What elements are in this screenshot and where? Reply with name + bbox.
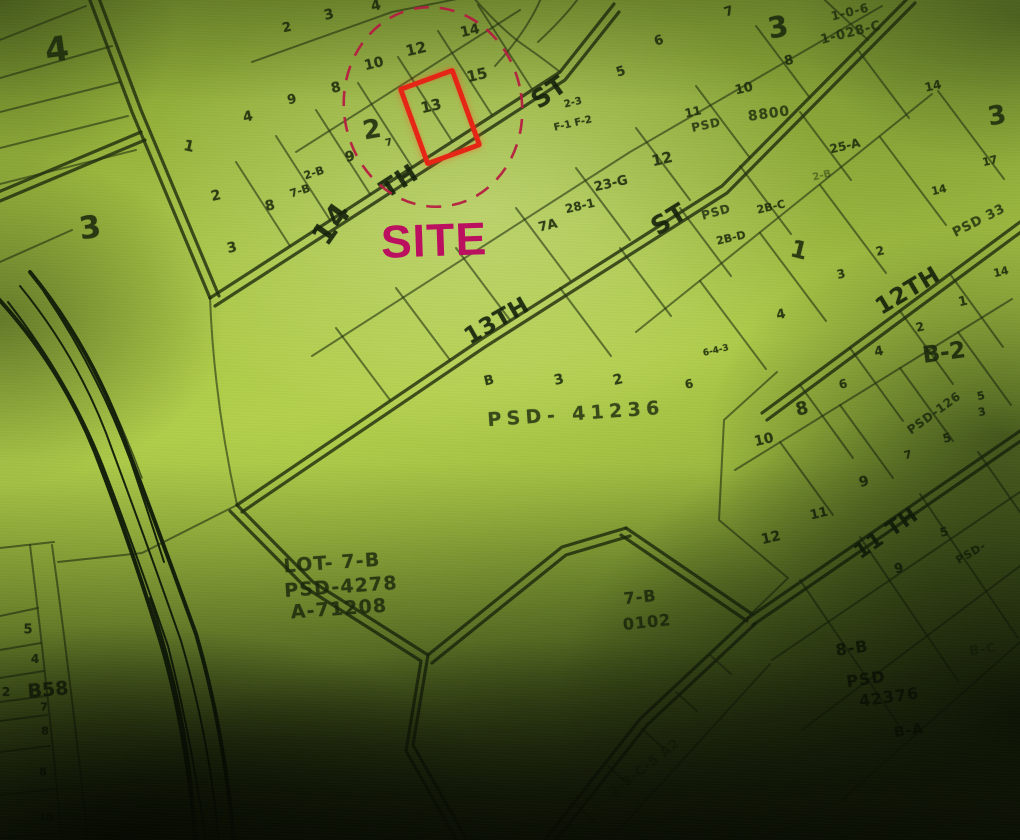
lot-number: 4 bbox=[873, 344, 885, 361]
lot-number: 6 bbox=[683, 376, 694, 392]
plat-map-photo: 14THST13THST12TH11 TH433321B-2B582349412… bbox=[0, 0, 1020, 840]
lot-number: 14 bbox=[930, 182, 948, 198]
lot-number: 2-B bbox=[812, 169, 833, 184]
street-label: 11 TH bbox=[849, 502, 922, 563]
lot-number: 8 bbox=[39, 766, 47, 779]
lot-number: 8 bbox=[263, 197, 276, 215]
lot-number: 11 bbox=[808, 505, 829, 524]
survey-annotation: LOT- 7-B bbox=[283, 549, 381, 578]
lot-number: 1 bbox=[957, 294, 969, 311]
lot-number: 5 bbox=[941, 430, 952, 446]
lot-number: 9 bbox=[857, 473, 870, 491]
survey-annotation: 1-0-6 bbox=[830, 1, 871, 24]
site-label: SITE bbox=[380, 211, 488, 269]
lot-number: 4 bbox=[31, 652, 39, 666]
lot-number: 2 bbox=[360, 114, 383, 147]
map-labels: 14THST13THST12TH11 TH433321B-2B582349412… bbox=[0, 0, 1020, 840]
lot-number: 4 bbox=[42, 29, 71, 72]
lot-number: 7-B bbox=[288, 182, 312, 201]
lot-number: 12 bbox=[760, 528, 783, 548]
lot-number: B bbox=[482, 373, 495, 390]
lot-number: 6-4-3 bbox=[702, 343, 730, 359]
lot-number: 8 bbox=[794, 397, 811, 420]
lot-number: 10 bbox=[39, 813, 53, 824]
survey-annotation: PSD- 41236 bbox=[487, 397, 666, 431]
street-label: 14 bbox=[305, 196, 359, 252]
lot-number: 2 bbox=[914, 319, 925, 335]
survey-annotation: 1-028-C bbox=[819, 18, 883, 48]
lot-number: 5 bbox=[976, 389, 986, 403]
lot-number: 4 bbox=[775, 307, 787, 324]
lot-number: 15 bbox=[465, 64, 489, 86]
lot-number: 3 bbox=[225, 239, 238, 257]
lot-number: 7 bbox=[903, 448, 913, 462]
lot-number: 8 bbox=[41, 725, 49, 738]
lot-number: 10 bbox=[753, 430, 776, 450]
survey-annotation: 8-B bbox=[834, 636, 869, 659]
lot-number: 6 bbox=[652, 32, 665, 49]
survey-annotation: PSD bbox=[700, 201, 732, 222]
lot-number: 7 bbox=[384, 137, 393, 149]
lot-number: 2-3 bbox=[563, 96, 583, 111]
lot-number: 1 bbox=[788, 234, 811, 265]
lot-number: 2B-D bbox=[715, 228, 747, 247]
lot-number: 9 bbox=[343, 148, 356, 166]
street-label: ST bbox=[646, 197, 693, 241]
lot-number: 8 bbox=[783, 53, 795, 70]
lot-number: 3 bbox=[322, 6, 335, 24]
lot-number: 6 bbox=[837, 376, 848, 392]
survey-annotation: 0102 bbox=[622, 610, 672, 634]
survey-annotation: 2-3-C-5 A2 bbox=[607, 736, 683, 800]
lot-number: 14 bbox=[459, 21, 482, 41]
street-label: 13TH bbox=[460, 292, 534, 350]
lot-number: 2 bbox=[209, 187, 222, 205]
lot-number: 2 bbox=[281, 20, 293, 37]
survey-annotation: PSD 33 bbox=[950, 201, 1008, 240]
lot-number: 3 bbox=[835, 266, 846, 282]
lot-number: 3 bbox=[765, 9, 791, 46]
lot-number: 23-G bbox=[593, 173, 630, 195]
survey-annotation: B-A bbox=[893, 721, 925, 741]
lot-number: 10 bbox=[363, 54, 386, 74]
lot-number: 2B-C bbox=[756, 197, 787, 216]
lot-number: 2 bbox=[2, 685, 10, 699]
lot-number: 10 bbox=[733, 80, 754, 99]
lot-number: 2-B bbox=[302, 164, 326, 183]
lot-number: 4 bbox=[241, 108, 254, 126]
lot-number: F-1 F-2 bbox=[553, 114, 593, 133]
survey-annotation: B-C bbox=[968, 641, 997, 660]
lot-number: B-2 bbox=[921, 337, 967, 369]
lot-number: 5 bbox=[614, 63, 627, 80]
lot-number: 5 bbox=[23, 623, 32, 638]
lot-number: 3 bbox=[77, 209, 103, 248]
lot-number: 7 bbox=[40, 701, 48, 714]
lot-number: 25-A bbox=[828, 136, 861, 157]
lot-number: 2 bbox=[874, 243, 885, 259]
survey-annotation: PSD-126 bbox=[905, 389, 964, 437]
lot-number: 28-1 bbox=[564, 196, 596, 216]
lot-number: 7 bbox=[722, 3, 735, 20]
survey-annotation: 8800 bbox=[747, 103, 791, 125]
street-label: 12TH bbox=[871, 262, 945, 321]
lot-number: 9 bbox=[286, 92, 298, 109]
lot-number: 8 bbox=[329, 79, 342, 97]
lot-number: 14 bbox=[992, 264, 1010, 280]
lot-number: 5 bbox=[938, 524, 949, 540]
lot-number: 3 bbox=[977, 405, 987, 419]
lot-number: 7A bbox=[537, 217, 559, 236]
lot-number: 2 bbox=[611, 371, 624, 389]
lot-number: 12 bbox=[650, 148, 674, 170]
street-label: TH bbox=[374, 158, 423, 204]
lot-number: 3 bbox=[985, 100, 1008, 133]
lot-number: 14 bbox=[923, 77, 942, 94]
survey-annotation: 7-B bbox=[623, 586, 658, 608]
lot-number: 12 bbox=[404, 38, 428, 60]
lot-number: 3 bbox=[552, 371, 565, 389]
lot-number: B58 bbox=[27, 677, 70, 702]
lot-number: 1 bbox=[182, 136, 196, 156]
lot-number: 17 bbox=[981, 153, 999, 169]
lot-number: 4 bbox=[369, 0, 382, 15]
survey-annotation: PSD- bbox=[954, 539, 989, 567]
lot-number: 9 bbox=[893, 561, 905, 578]
